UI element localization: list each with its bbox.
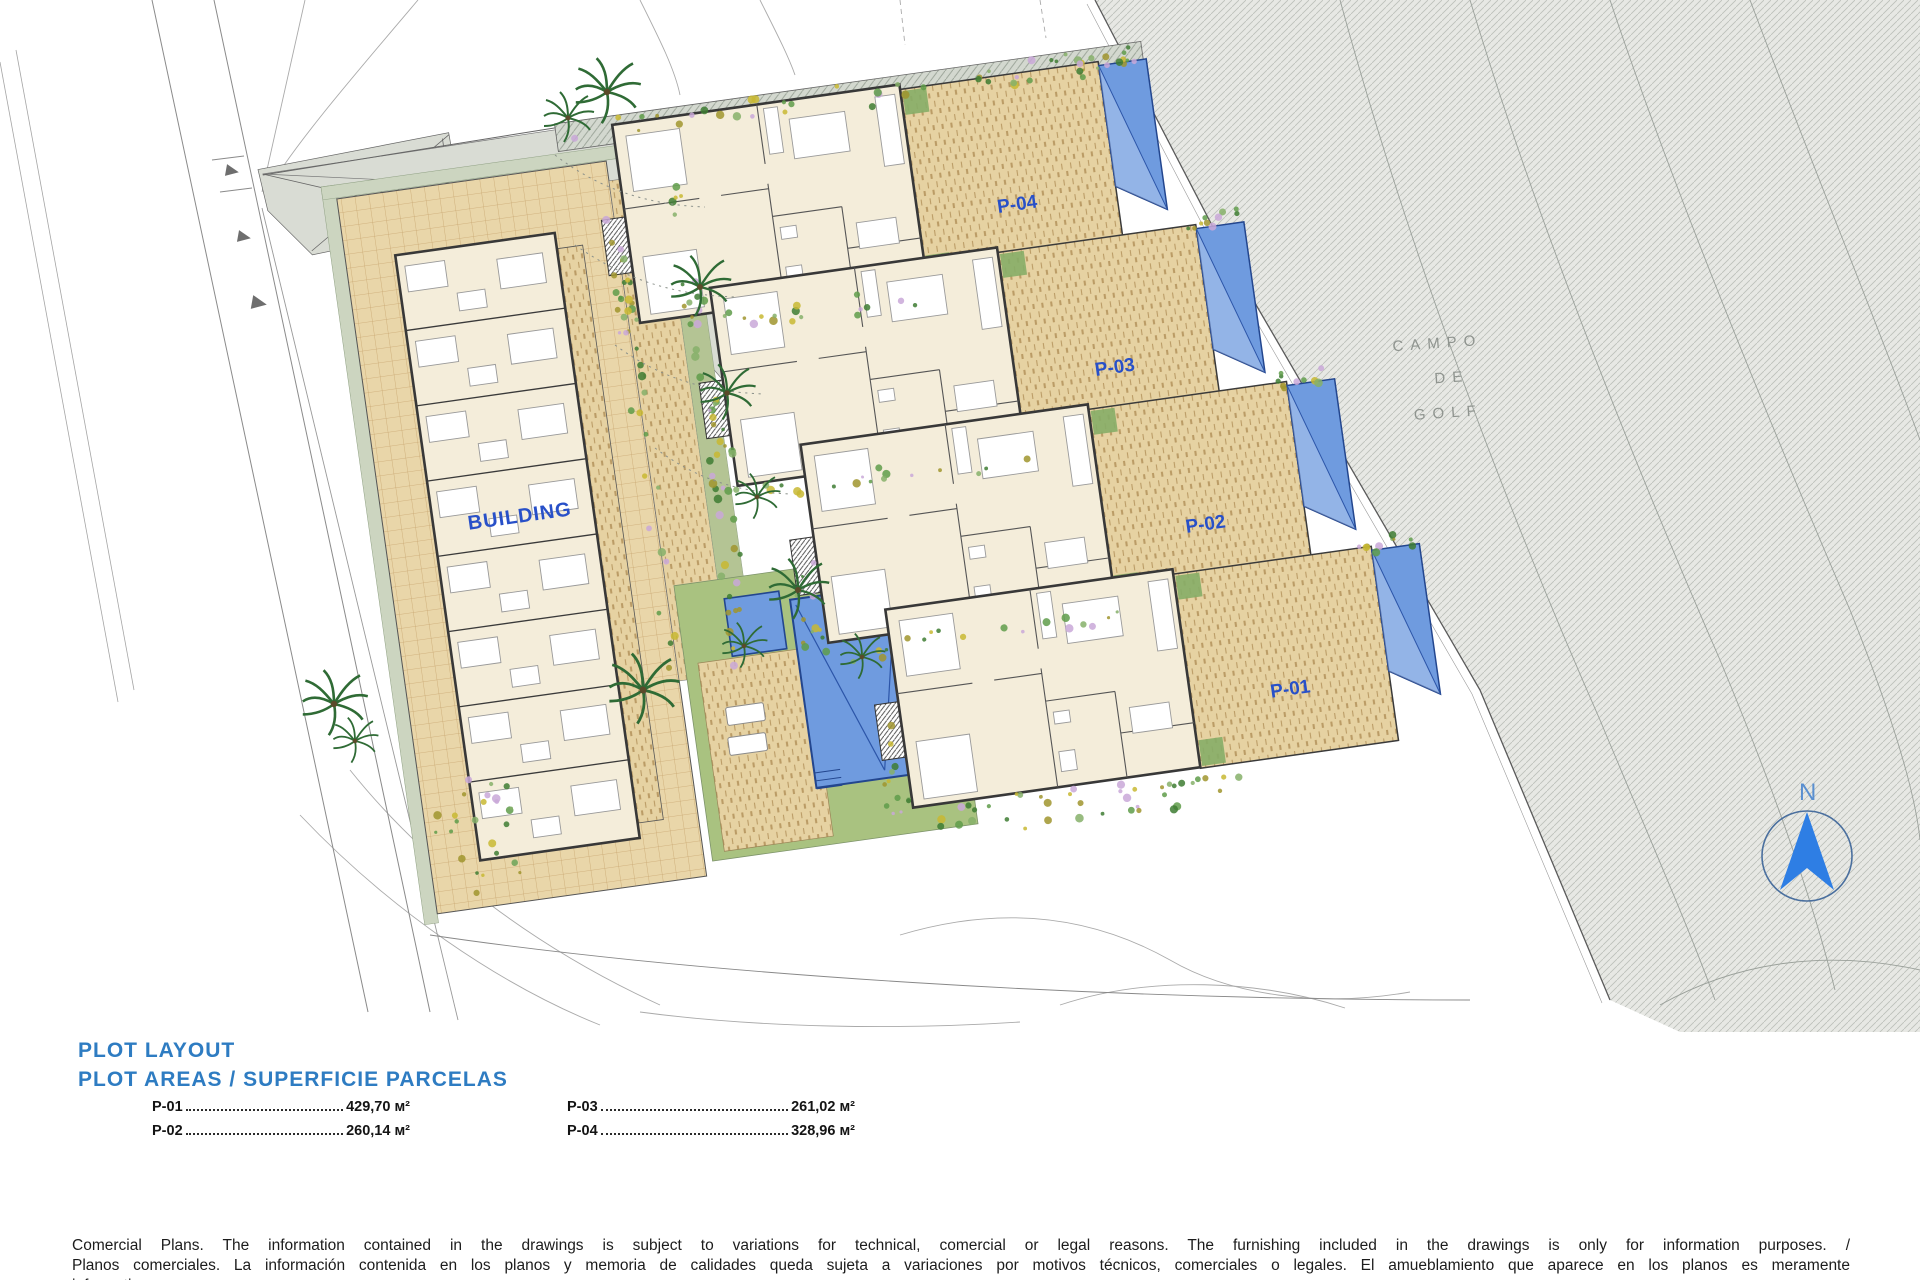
compass-north-label: N <box>1799 779 1816 806</box>
road-direction-arrows <box>225 164 268 311</box>
disclaimer-line-en: Comercial Plans. The information contain… <box>72 1236 1850 1256</box>
dotted-leader <box>601 1109 788 1111</box>
area-value: 429,70 м² <box>346 1099 410 1115</box>
area-plot-id: P-04 <box>567 1123 598 1139</box>
plot-layout-page: CAMPO DE GOLF <box>0 0 1920 1280</box>
site-plan: CAMPO DE GOLF <box>0 0 1920 1032</box>
area-plot-id: P-03 <box>567 1099 598 1115</box>
dotted-leader <box>186 1133 343 1135</box>
area-value: 260,14 м² <box>346 1123 410 1139</box>
area-row-p01: P-01 429,70 м² <box>152 1099 410 1123</box>
dotted-leader <box>601 1133 788 1135</box>
plot-areas-title: PLOT AREAS / SUPERFICIE PARCELAS <box>78 1065 508 1094</box>
dotted-leader <box>186 1109 343 1111</box>
area-plot-id: P-02 <box>152 1123 183 1139</box>
disclaimer-line-last: informativo. <box>72 1276 1850 1280</box>
area-row-p03: P-03 261,02 м² <box>567 1099 855 1123</box>
plot-areas-column-2: P-03 261,02 м² P-04 328,96 м² <box>567 1099 855 1147</box>
plot-layout-title: PLOT LAYOUT <box>78 1036 508 1065</box>
disclaimer-line-es: Planos comerciales. La información conte… <box>72 1256 1850 1276</box>
area-value: 328,96 м² <box>791 1123 855 1139</box>
plot-areas-column-1: P-01 429,70 м² P-02 260,14 м² <box>152 1099 410 1147</box>
area-row-p02: P-02 260,14 м² <box>152 1123 410 1147</box>
area-row-p04: P-04 328,96 м² <box>567 1123 855 1147</box>
svg-text:DE: DE <box>1434 368 1470 387</box>
legend-block: PLOT LAYOUT PLOT AREAS / SUPERFICIE PARC… <box>78 1036 508 1094</box>
disclaimer-text: Comercial Plans. The information contain… <box>72 1236 1850 1280</box>
area-value: 261,02 м² <box>791 1099 855 1115</box>
area-plot-id: P-01 <box>152 1099 183 1115</box>
